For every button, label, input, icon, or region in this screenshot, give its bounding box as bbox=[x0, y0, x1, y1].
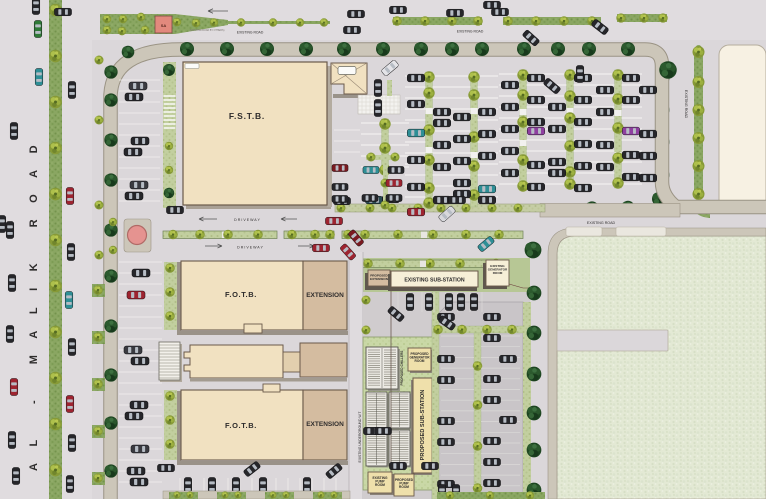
svg-text:PROPOSEDEXTENSION: PROPOSEDEXTENSION bbox=[370, 274, 389, 282]
svg-text:SA: SA bbox=[161, 23, 167, 28]
svg-text:D R I V E W A Y: D R I V E W A Y bbox=[234, 218, 260, 222]
svg-text:F.S.T.B.: F.S.T.B. bbox=[229, 111, 265, 121]
svg-text:EXTENSION: EXTENSION bbox=[306, 421, 344, 428]
svg-text:EXISTING SUB-STATION: EXISTING SUB-STATION bbox=[404, 278, 465, 284]
svg-text:AL - MALIK ROAD: AL - MALIK ROAD bbox=[28, 129, 40, 471]
svg-text:EXISTING UNDERGROUND W.T: EXISTING UNDERGROUND W.T bbox=[358, 412, 362, 463]
svg-text:EXISTING ROAD: EXISTING ROAD bbox=[587, 221, 616, 225]
svg-text:EXISTING ROAD: EXISTING ROAD bbox=[684, 90, 688, 119]
svg-text:PROPOSED CHILLERS: PROPOSED CHILLERS bbox=[400, 351, 404, 386]
svg-text:F.O.T.B.: F.O.T.B. bbox=[225, 290, 257, 299]
svg-text:PROPOSED SUB-STATION: PROPOSED SUB-STATION bbox=[420, 390, 426, 461]
svg-text:(EXISTING ROAD BY OTHERS): (EXISTING ROAD BY OTHERS) bbox=[190, 29, 225, 32]
svg-text:EXISTING ROAD: EXISTING ROAD bbox=[457, 30, 484, 34]
svg-text:F.O.T.B.: F.O.T.B. bbox=[225, 421, 257, 430]
svg-text:EXISTING ROAD: EXISTING ROAD bbox=[237, 31, 264, 35]
svg-text:D R I V E W A Y: D R I V E W A Y bbox=[237, 246, 263, 250]
svg-text:EXTENSION: EXTENSION bbox=[306, 292, 344, 299]
